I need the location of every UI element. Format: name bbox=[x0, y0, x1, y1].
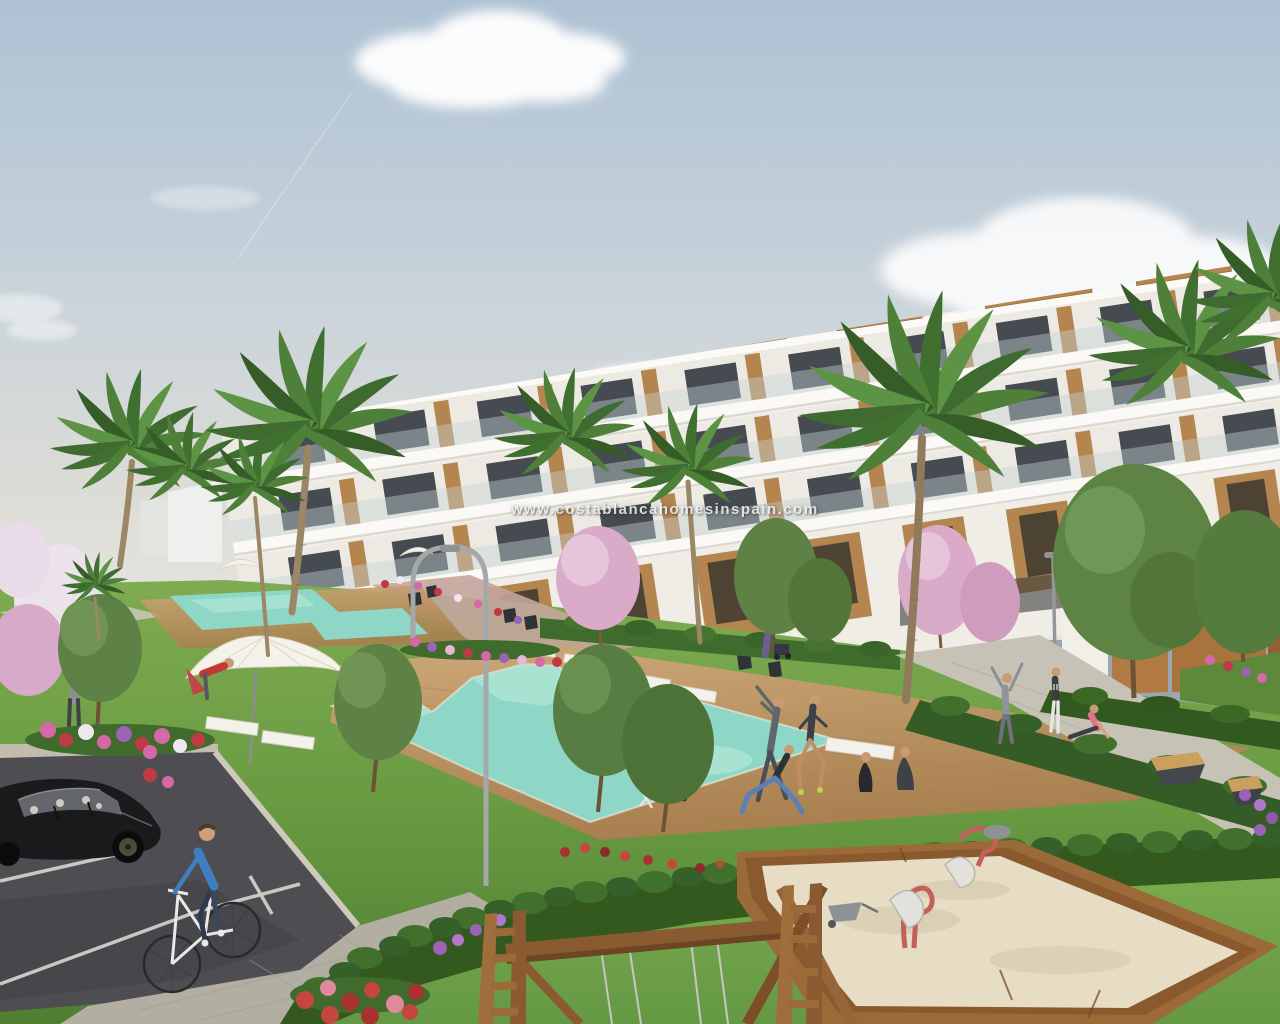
rendered-photo: www.costablancahomesinspain.com bbox=[0, 0, 1280, 1024]
watermark: www.costablancahomesinspain.com bbox=[511, 501, 931, 518]
